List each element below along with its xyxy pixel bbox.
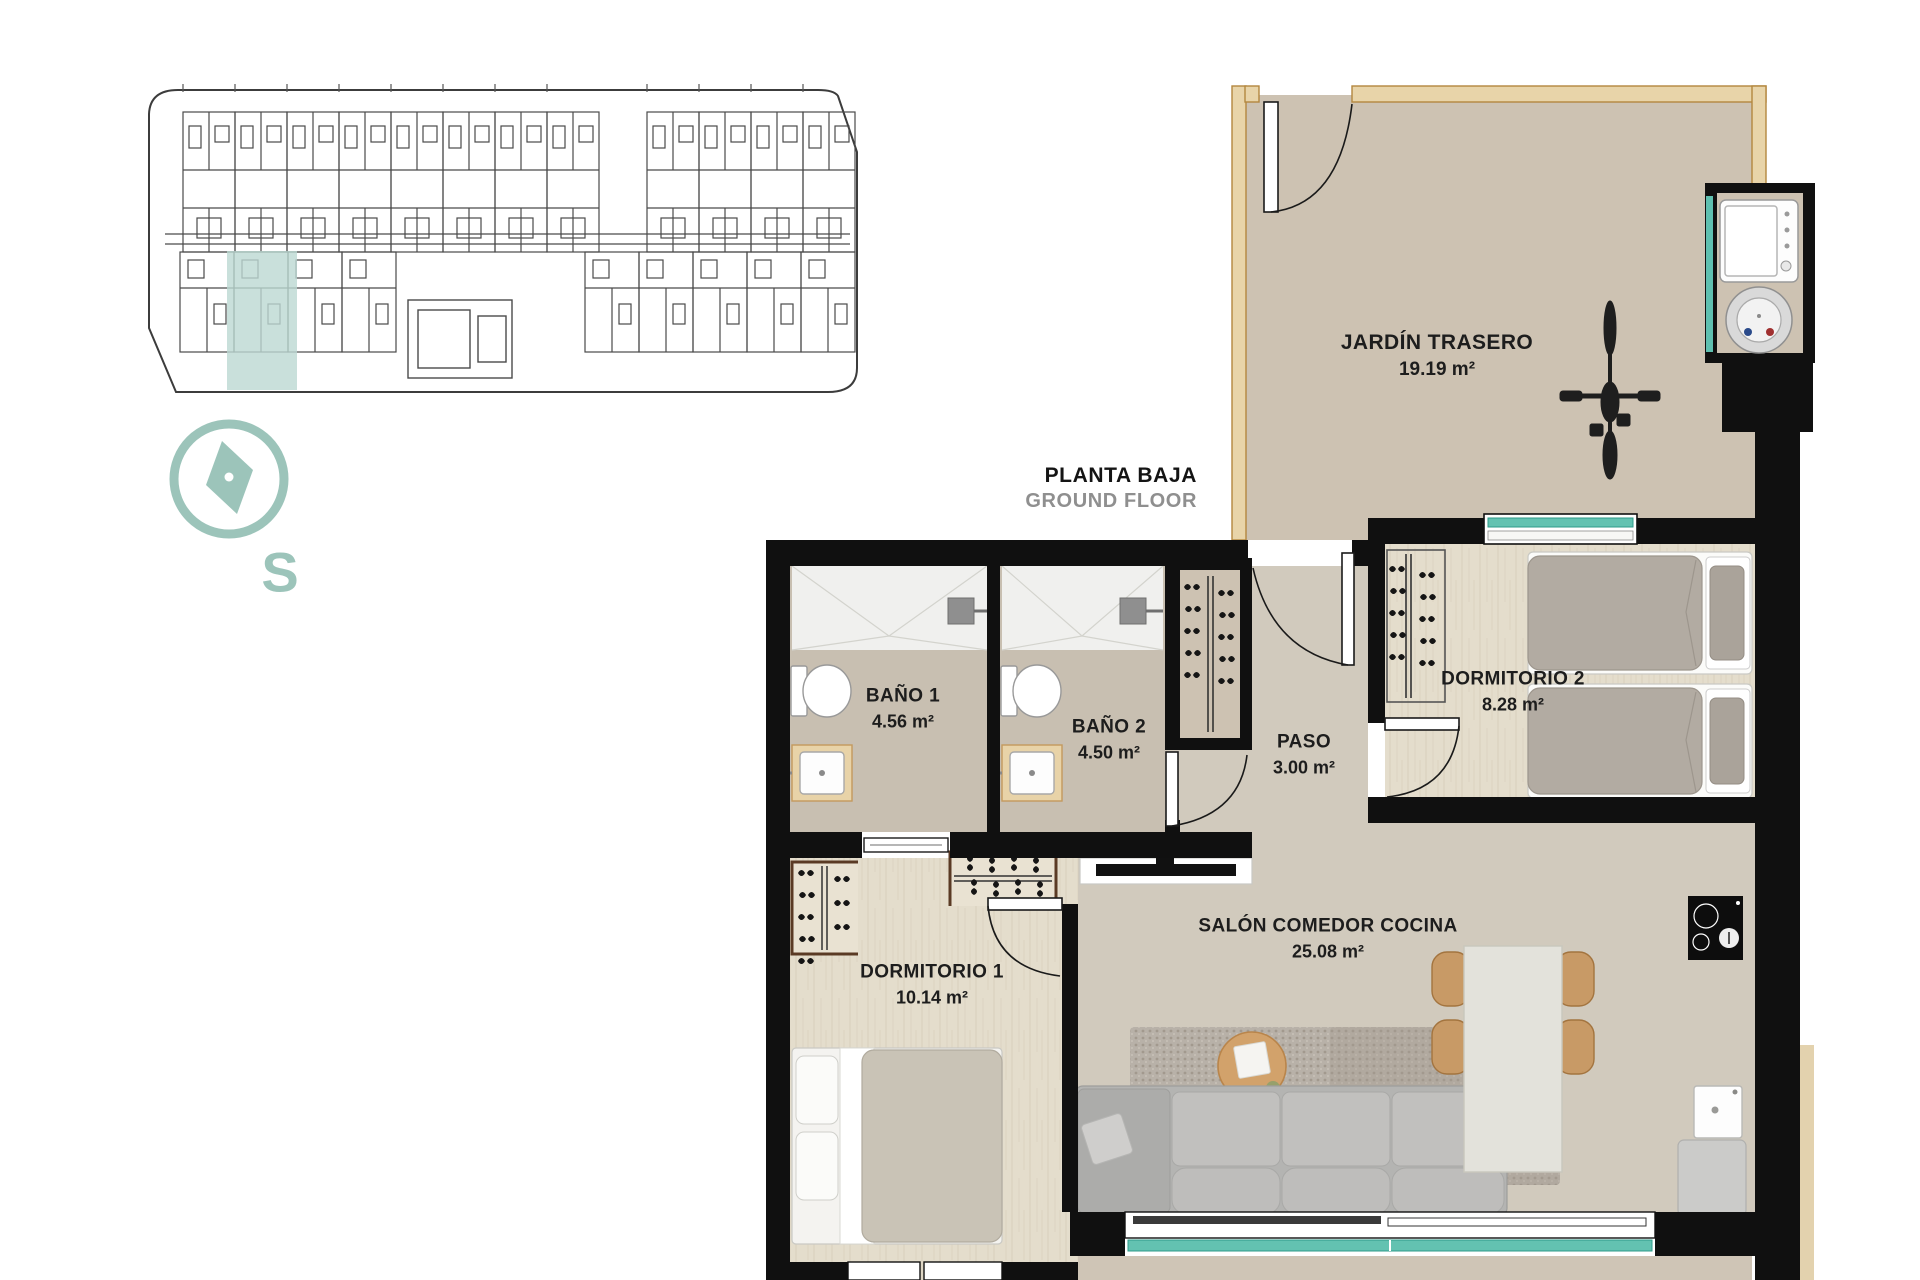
- tv-unit: [1080, 858, 1252, 884]
- compass-cardinal-letter: S: [261, 540, 298, 605]
- exterior-strip: [1800, 1045, 1814, 1280]
- plan-title: PLANTA BAJA GROUND FLOOR: [985, 464, 1197, 513]
- room-label-bano1: BAÑO 1 4.56 m²: [866, 686, 940, 733]
- garden-floor: [1245, 95, 1755, 540]
- utility-closet: [1705, 183, 1815, 363]
- room-label-dormitorio2: DORMITORIO 2 8.28 m²: [1441, 669, 1585, 716]
- room-label-jardin: JARDÍN TRASERO 19.19 m²: [1341, 331, 1533, 381]
- room-label-paso: PASO 3.00 m²: [1273, 732, 1335, 779]
- washbasin-icon: [786, 745, 852, 801]
- toilet-icon: [1001, 665, 1061, 717]
- highlighted-unit: [227, 251, 297, 390]
- dorm2-window: [1484, 514, 1637, 544]
- dorm1-window: [848, 1262, 1002, 1280]
- closet-door-glass: [1706, 196, 1713, 352]
- plan-title-en: GROUND FLOOR: [985, 490, 1197, 513]
- dining-table: [1464, 946, 1562, 1172]
- toilet-icon: [791, 665, 851, 717]
- salon-sliding-window: [1125, 1212, 1655, 1251]
- plan-title-es: PLANTA BAJA: [985, 464, 1197, 488]
- sofa: [1075, 1086, 1510, 1216]
- dorm1-wardrobe-left: [792, 862, 858, 964]
- dorm1-double-bed: [792, 1048, 1002, 1244]
- shower-tray: [792, 566, 987, 650]
- kitchen-counter: [1678, 1140, 1746, 1216]
- dorm2-bed-1: [1528, 552, 1752, 674]
- room-label-dormitorio1: DORMITORIO 1 10.14 m²: [860, 962, 1004, 1009]
- water-heater-icon: [1726, 287, 1792, 353]
- washing-machine-icon: [1720, 200, 1798, 282]
- hall-closet: [1165, 558, 1252, 750]
- cooktop-icon: [1688, 896, 1743, 960]
- floor-plan-graphic: [0, 0, 1920, 1280]
- room-jardin-trasero: [1232, 86, 1815, 540]
- room-label-bano2: BAÑO 2 4.50 m²: [1072, 717, 1146, 764]
- compass: [174, 424, 284, 534]
- kitchen-sink-icon: [1694, 1086, 1742, 1138]
- floor-plan-page: PLANTA BAJA GROUND FLOOR JARDÍN TRASERO …: [0, 0, 1920, 1280]
- washbasin-icon: [996, 745, 1062, 801]
- bano1-sliding-door: [864, 838, 948, 852]
- front-terrace-floor: [1078, 1256, 1752, 1280]
- compass-pivot: [225, 473, 234, 482]
- shower-tray: [1002, 566, 1163, 650]
- site-plan: [149, 84, 857, 392]
- room-label-salon: SALÓN COMEDOR COCINA 25.08 m²: [1198, 916, 1457, 963]
